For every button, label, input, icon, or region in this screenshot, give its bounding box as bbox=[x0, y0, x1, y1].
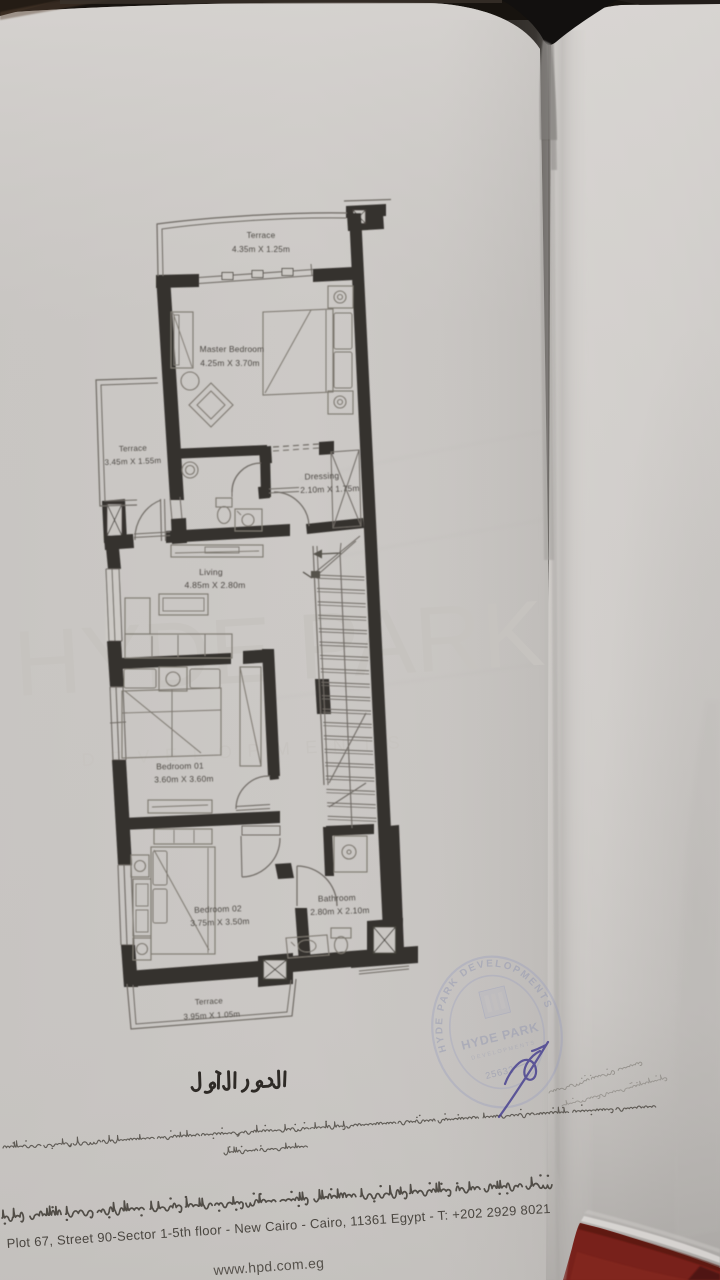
svg-text:Terrace: Terrace bbox=[247, 231, 276, 240]
svg-text:4.25m X 3.70m: 4.25m X 3.70m bbox=[200, 358, 259, 368]
svg-text:Dressing: Dressing bbox=[304, 470, 339, 481]
svg-text:4.35m X 1.25m: 4.35m X 1.25m bbox=[232, 245, 290, 254]
svg-text:4.85m X 2.80m: 4.85m X 2.80m bbox=[185, 580, 246, 590]
svg-text:3.75m X 3.50m: 3.75m X 3.50m bbox=[190, 916, 250, 928]
svg-text:Master Bedroom: Master Bedroom bbox=[200, 344, 265, 354]
svg-text:Living: Living bbox=[199, 567, 223, 577]
svg-text:Terrace: Terrace bbox=[195, 996, 224, 1006]
svg-text:Bedroom 02: Bedroom 02 bbox=[194, 903, 242, 915]
svg-text:Terrace: Terrace bbox=[119, 444, 148, 454]
svg-text:2.10m X 1.75m: 2.10m X 1.75m bbox=[300, 483, 360, 495]
svg-text:Bedroom 01: Bedroom 01 bbox=[156, 761, 204, 772]
svg-text:3.60m X 3.60m: 3.60m X 3.60m bbox=[154, 773, 214, 784]
svg-text:Bathroom: Bathroom bbox=[318, 892, 356, 903]
svg-text:2.80m X 2.10m: 2.80m X 2.10m bbox=[310, 905, 370, 917]
